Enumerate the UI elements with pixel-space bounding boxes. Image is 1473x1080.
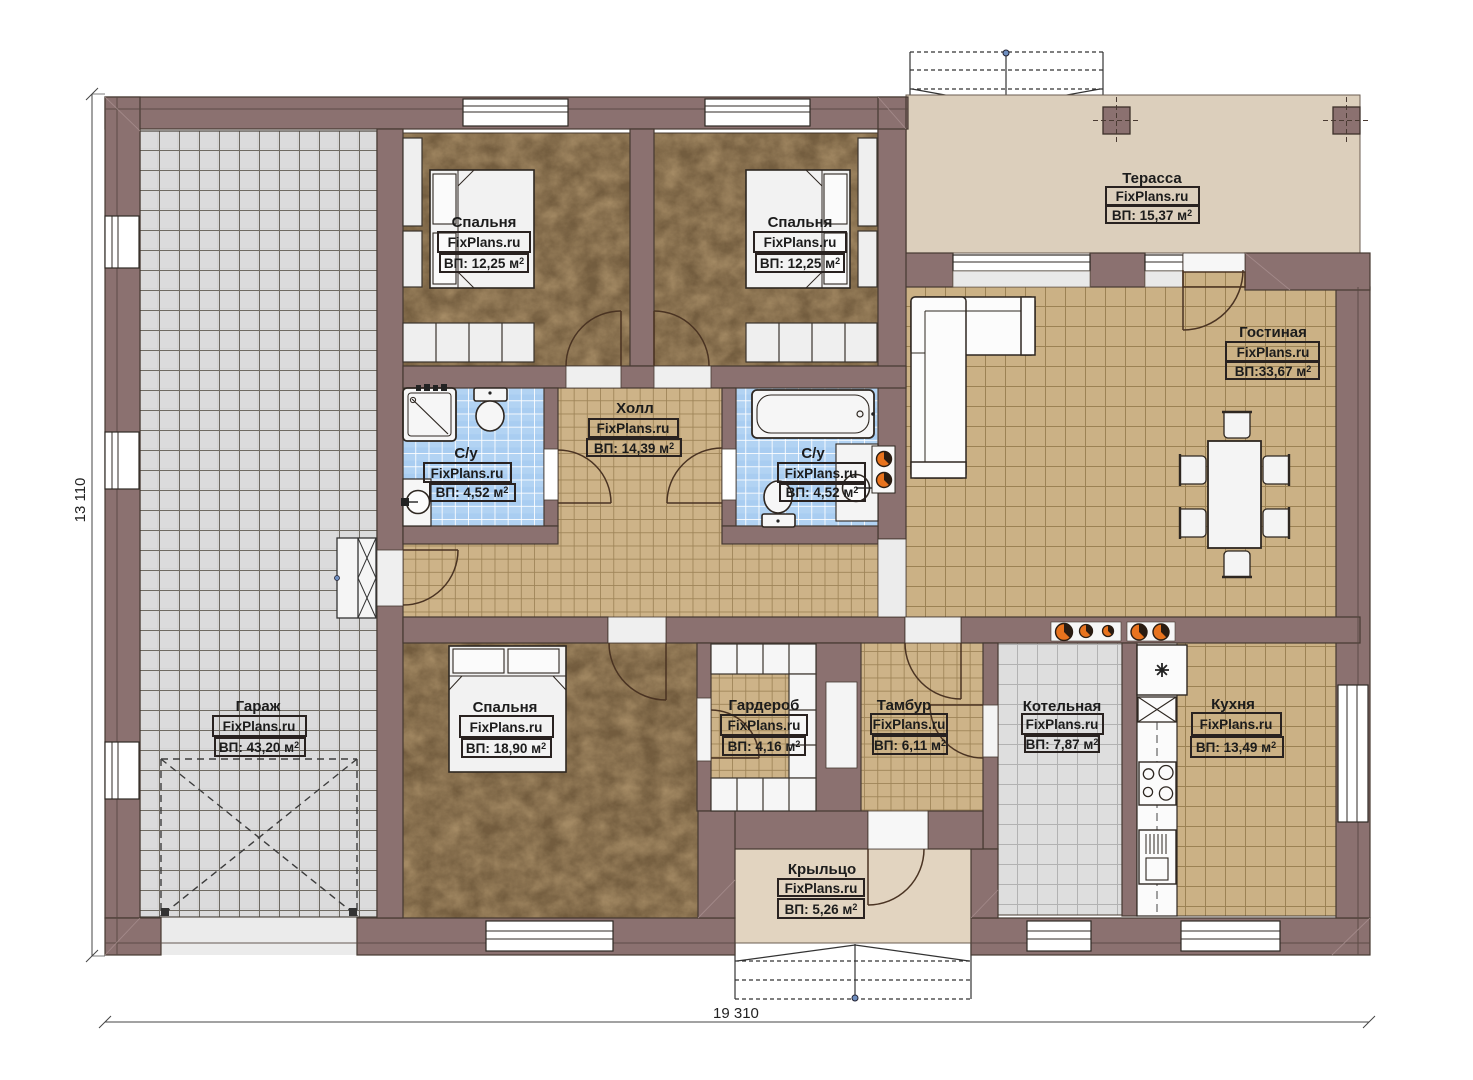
- svg-text:FixPlans.ru: FixPlans.ru: [1116, 189, 1189, 204]
- svg-text:FixPlans.ru: FixPlans.ru: [223, 719, 296, 734]
- svg-text:ВП: 12,25 м2: ВП: 12,25 м2: [444, 256, 524, 271]
- svg-text:ВП: 4,16 м2: ВП: 4,16 м2: [728, 739, 801, 754]
- svg-text:ВП: 13,49 м2: ВП: 13,49 м2: [1196, 740, 1276, 755]
- svg-text:FixPlans.ru: FixPlans.ru: [785, 881, 858, 896]
- svg-text:С/у: С/у: [801, 445, 825, 462]
- svg-text:FixPlans.ru: FixPlans.ru: [764, 235, 837, 250]
- svg-text:Терасса: Терасса: [1122, 170, 1182, 187]
- svg-text:Кухня: Кухня: [1211, 696, 1255, 713]
- svg-text:19 310: 19 310: [713, 1005, 759, 1022]
- svg-text:FixPlans.ru: FixPlans.ru: [728, 718, 801, 733]
- svg-text:ВП: 12,25 м2: ВП: 12,25 м2: [760, 256, 840, 271]
- svg-text:ВП: 4,52 м2: ВП: 4,52 м2: [786, 485, 859, 500]
- svg-text:ВП: 14,39 м2: ВП: 14,39 м2: [594, 441, 674, 456]
- svg-text:FixPlans.ru: FixPlans.ru: [448, 235, 521, 250]
- svg-text:FixPlans.ru: FixPlans.ru: [597, 421, 670, 436]
- svg-text:Крыльцо: Крыльцо: [788, 861, 856, 878]
- svg-text:ВП: 5,26 м2: ВП: 5,26 м2: [785, 902, 858, 917]
- svg-text:Спальня: Спальня: [473, 699, 538, 716]
- svg-text:С/у: С/у: [454, 445, 478, 462]
- svg-text:Спальня: Спальня: [452, 214, 517, 231]
- svg-text:FixPlans.ru: FixPlans.ru: [1237, 345, 1310, 360]
- svg-text:13 110: 13 110: [72, 478, 89, 523]
- svg-text:Гостиная: Гостиная: [1239, 324, 1307, 341]
- svg-text:Спальня: Спальня: [768, 214, 833, 231]
- svg-text:Котельная: Котельная: [1023, 698, 1102, 715]
- svg-text:Тамбур: Тамбур: [877, 697, 931, 714]
- svg-text:FixPlans.ru: FixPlans.ru: [1200, 717, 1273, 732]
- svg-text:FixPlans.ru: FixPlans.ru: [431, 466, 504, 481]
- svg-text:ВП: 4,52 м2: ВП: 4,52 м2: [436, 485, 509, 500]
- svg-text:ВП: 15,37 м2: ВП: 15,37 м2: [1112, 208, 1192, 223]
- svg-text:FixPlans.ru: FixPlans.ru: [470, 720, 543, 735]
- svg-text:ВП:33,67 м2: ВП:33,67 м2: [1235, 364, 1311, 379]
- svg-text:FixPlans.ru: FixPlans.ru: [873, 717, 946, 732]
- svg-text:ВП: 43,20 м2: ВП: 43,20 м2: [219, 740, 299, 755]
- svg-text:ВП: 18,90 м2: ВП: 18,90 м2: [466, 741, 546, 756]
- svg-text:ВП: 6,11 м2: ВП: 6,11 м2: [874, 738, 946, 753]
- svg-text:Холл: Холл: [616, 400, 654, 417]
- svg-text:FixPlans.ru: FixPlans.ru: [1026, 717, 1099, 732]
- svg-text:FixPlans.ru: FixPlans.ru: [785, 466, 858, 481]
- svg-text:ВП: 7,87 м2: ВП: 7,87 м2: [1026, 737, 1099, 752]
- svg-text:Гардероб: Гардероб: [729, 697, 800, 714]
- svg-text:Гараж: Гараж: [236, 698, 281, 715]
